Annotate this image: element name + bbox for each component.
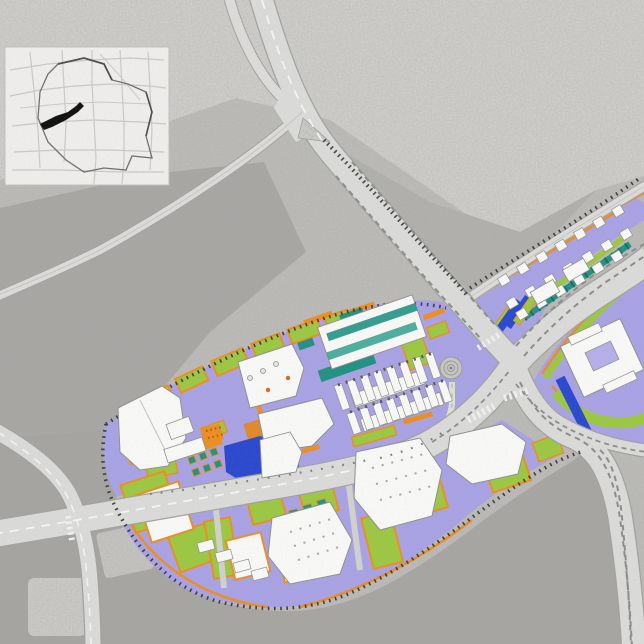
- grain-overlay-top: [0, 0, 644, 644]
- plan-canvas: [0, 0, 644, 644]
- plan-svg: [0, 0, 644, 644]
- top-grain: [0, 0, 644, 644]
